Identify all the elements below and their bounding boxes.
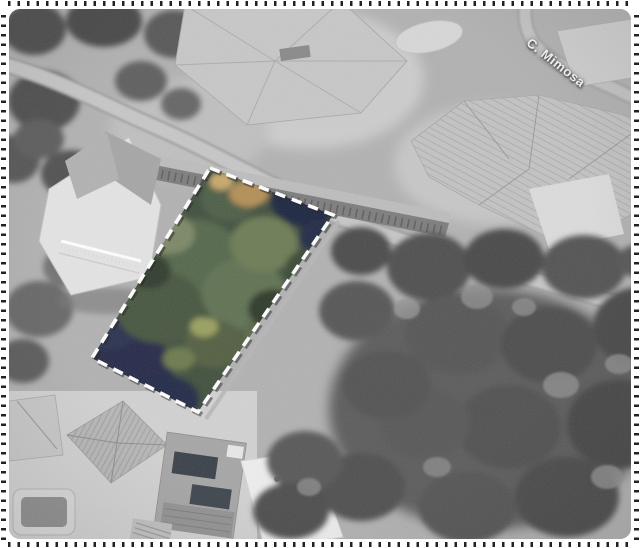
photo-grain [9,9,631,539]
aerial-photo-svg [9,9,631,539]
frame-ticks-right [634,8,639,540]
aerial-photo-figure: C. Mimosa [0,0,640,548]
frame-ticks-left [1,8,6,540]
aerial-photo: C. Mimosa [9,9,631,539]
frame-ticks-top [8,1,632,6]
frame-ticks-bottom [8,542,632,547]
